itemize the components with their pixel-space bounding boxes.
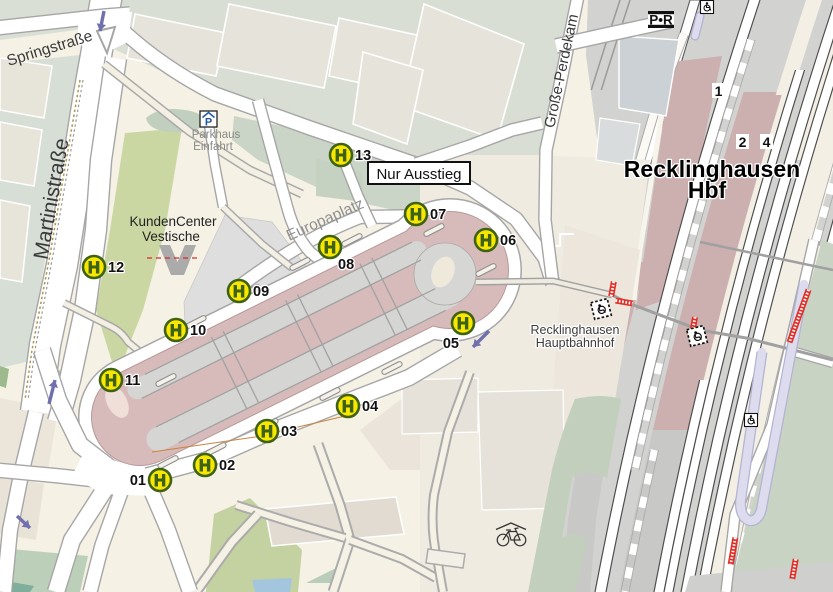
svg-text:Nur Ausstieg: Nur Ausstieg [376, 166, 461, 183]
svg-text:09: 09 [253, 284, 269, 300]
svg-text:P•R: P•R [649, 13, 673, 28]
svg-text:06: 06 [500, 233, 516, 249]
svg-text:Hbf: Hbf [688, 177, 727, 203]
svg-text:11: 11 [125, 373, 140, 389]
svg-text:H: H [199, 457, 211, 475]
svg-text:01: 01 [130, 473, 146, 489]
svg-text:Parkhaus: Parkhaus [192, 129, 241, 141]
svg-text:04: 04 [362, 399, 378, 415]
svg-text:H: H [170, 322, 182, 340]
svg-text:P: P [205, 117, 212, 129]
svg-text:H: H [324, 239, 336, 257]
svg-text:Hauptbahnhof: Hauptbahnhof [536, 336, 615, 350]
svg-text:H: H [480, 232, 492, 250]
svg-text:H: H [335, 147, 347, 165]
svg-text:H: H [342, 398, 354, 416]
svg-text:KundenCenter: KundenCenter [129, 214, 217, 229]
svg-text:Recklinghausen: Recklinghausen [531, 323, 620, 337]
svg-text:12: 12 [108, 260, 124, 276]
svg-text:H: H [410, 206, 422, 224]
svg-text:10: 10 [190, 323, 206, 339]
svg-text:H: H [233, 283, 245, 301]
svg-text:H: H [88, 259, 100, 277]
svg-text:H: H [154, 472, 166, 490]
svg-text:1: 1 [715, 83, 723, 99]
svg-text:02: 02 [219, 458, 235, 474]
svg-text:13: 13 [355, 148, 371, 164]
svg-text:05: 05 [443, 336, 459, 352]
svg-text:H: H [105, 372, 117, 390]
svg-text:Einfahrt: Einfahrt [193, 141, 233, 153]
svg-text:07: 07 [430, 207, 446, 223]
svg-text:H: H [261, 423, 273, 441]
svg-text:08: 08 [338, 257, 354, 273]
svg-text:2: 2 [739, 134, 747, 150]
svg-text:Vestische: Vestische [142, 229, 200, 244]
svg-text:03: 03 [281, 424, 297, 440]
svg-text:H: H [457, 315, 469, 333]
svg-text:4: 4 [763, 134, 771, 150]
